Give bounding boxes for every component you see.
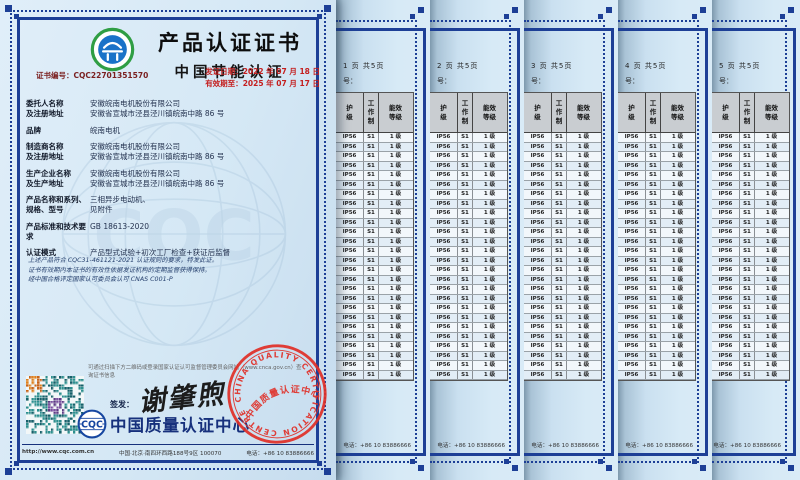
page-border <box>430 461 511 463</box>
table-row: IP56S11 级 <box>618 371 695 381</box>
table-cell: 1 级 <box>661 238 694 247</box>
table-cell: S1 <box>740 257 755 266</box>
table-cell: S1 <box>552 361 567 370</box>
table-row: IP56S11 级 <box>712 228 789 238</box>
table-row: IP56S11 级 <box>618 143 695 153</box>
table-row: IP56S11 级 <box>336 200 413 210</box>
table-cell: IP56 <box>336 323 364 332</box>
table-cell: S1 <box>458 295 473 304</box>
table-cell: S1 <box>364 352 379 361</box>
table-cell: IP56 <box>524 171 552 180</box>
table-row: IP56S11 级 <box>430 285 507 295</box>
table-row: IP56S11 级 <box>430 323 507 333</box>
table-cell: 1 级 <box>473 200 506 209</box>
certificate-page: CQC 产品认证证书 中国节能认证 证书编号：CQ <box>0 0 336 480</box>
table-header-cell: 护级 <box>336 93 364 132</box>
table-cell: IP56 <box>430 323 458 332</box>
table-cell: S1 <box>646 143 661 152</box>
field-label: 生产企业名称及生产地址 <box>26 169 90 189</box>
table-cell: S1 <box>458 143 473 152</box>
table-cell: IP56 <box>430 304 458 313</box>
table-cell: S1 <box>740 323 755 332</box>
table-row: IP56S11 级 <box>430 276 507 286</box>
table-cell: 1 级 <box>379 228 412 237</box>
table-row: IP56S11 级 <box>712 371 789 381</box>
table-cell: IP56 <box>712 361 740 370</box>
page-number-label: 2 页 共5页 <box>437 61 478 71</box>
table-cell: IP56 <box>712 219 740 228</box>
table-cell: S1 <box>646 304 661 313</box>
table-cell: IP56 <box>618 361 646 370</box>
table-cell: 1 级 <box>473 314 506 323</box>
table-cell: S1 <box>740 295 755 304</box>
table-cell: 1 级 <box>567 276 600 285</box>
table-cell: IP56 <box>430 181 458 190</box>
table-cell: S1 <box>552 247 567 256</box>
table-cell: IP56 <box>618 152 646 161</box>
table-cell: S1 <box>552 304 567 313</box>
table-cell: S1 <box>458 200 473 209</box>
footer-url: http://www.cqc.com.cn <box>22 449 94 457</box>
table-cell: 1 级 <box>379 295 412 304</box>
table-cell: S1 <box>364 361 379 370</box>
certificate-title: 产品认证证书 <box>140 27 320 57</box>
table-cell: S1 <box>552 171 567 180</box>
table-cell: IP56 <box>618 162 646 171</box>
table-cell: 1 级 <box>473 323 506 332</box>
table-row: IP56S11 级 <box>712 143 789 153</box>
table-cell: 1 级 <box>661 314 694 323</box>
energy-efficiency-table: 护级工作制能效等级IP56S11 级IP56S11 级IP56S11 级IP56… <box>430 92 508 381</box>
table-row: IP56S11 级 <box>430 181 507 191</box>
corner-square <box>606 465 612 471</box>
table-cell: 1 级 <box>755 371 788 380</box>
table-cell: S1 <box>740 266 755 275</box>
table-cell: S1 <box>552 162 567 171</box>
table-cell: S1 <box>740 304 755 313</box>
table-cell: S1 <box>552 295 567 304</box>
table-cell: IP56 <box>618 314 646 323</box>
certificate-field: 产品名称和系列、规格、型号三相异步电动机、见附件 <box>26 195 320 215</box>
table-cell: S1 <box>552 333 567 342</box>
table-cell: S1 <box>458 285 473 294</box>
page-border <box>618 453 708 456</box>
table-cell: S1 <box>646 247 661 256</box>
table-header-cell: 能效等级 <box>567 93 600 132</box>
table-cell: 1 级 <box>661 257 694 266</box>
table-cell: 1 级 <box>755 162 788 171</box>
table-cell: IP56 <box>336 295 364 304</box>
table-cell: IP56 <box>336 266 364 275</box>
table-cell: IP56 <box>524 143 552 152</box>
table-row: IP56S11 级 <box>524 304 601 314</box>
table-cell: 1 级 <box>567 219 600 228</box>
table-cell: IP56 <box>430 219 458 228</box>
table-cell: S1 <box>740 200 755 209</box>
table-cell: S1 <box>646 323 661 332</box>
table-cell: 1 级 <box>379 361 412 370</box>
energy-efficiency-table: 护级工作制能效等级IP56S11 级IP56S11 级IP56S11 级IP56… <box>524 92 602 381</box>
table-cell: IP56 <box>524 323 552 332</box>
table-cell: 1 级 <box>755 257 788 266</box>
table-row: IP56S11 级 <box>618 247 695 257</box>
table-cell: 1 级 <box>379 342 412 351</box>
table-cell: S1 <box>646 361 661 370</box>
table-cell: IP56 <box>618 352 646 361</box>
table-cell: IP56 <box>712 342 740 351</box>
table-cell: IP56 <box>524 238 552 247</box>
table-cell: 1 级 <box>567 143 600 152</box>
table-cell: S1 <box>740 371 755 380</box>
table-cell: 1 级 <box>755 314 788 323</box>
footer-phone: 电话：+86 10 83886666 <box>437 441 505 449</box>
table-cell: IP56 <box>618 333 646 342</box>
table-cell: 1 级 <box>755 200 788 209</box>
table-cell: 1 级 <box>473 209 506 218</box>
table-cell: 1 级 <box>567 133 600 142</box>
table-row: IP56S11 级 <box>618 285 695 295</box>
table-cell: IP56 <box>336 228 364 237</box>
table-cell: IP56 <box>712 228 740 237</box>
table-row: IP56S11 级 <box>336 323 413 333</box>
table-cell: 1 级 <box>755 209 788 218</box>
table-cell: 1 级 <box>567 333 600 342</box>
table-cell: IP56 <box>712 285 740 294</box>
table-row: IP56S11 级 <box>336 133 413 143</box>
table-header-cell: 能效等级 <box>661 93 694 132</box>
table-cell: 1 级 <box>755 152 788 161</box>
corner-square <box>512 7 518 13</box>
table-row: IP56S11 级 <box>618 209 695 219</box>
table-cell: S1 <box>740 143 755 152</box>
table-cell: 1 级 <box>661 285 694 294</box>
table-cell: 1 级 <box>567 162 600 171</box>
table-row: IP56S11 级 <box>430 143 507 153</box>
table-row: IP56S11 级 <box>524 342 601 352</box>
table-cell: IP56 <box>712 133 740 142</box>
table-cell: S1 <box>552 371 567 380</box>
table-row: IP56S11 级 <box>430 162 507 172</box>
table-cell: IP56 <box>524 314 552 323</box>
page-border <box>697 20 699 463</box>
table-cell: S1 <box>646 190 661 199</box>
table-cell: IP56 <box>712 276 740 285</box>
table-header-cell: 护级 <box>524 93 552 132</box>
table-row: IP56S11 级 <box>712 257 789 267</box>
table-cell: S1 <box>364 314 379 323</box>
attachment-page: 1 页 共5页号：护级工作制能效等级IP56S11 级IP56S11 级IP56… <box>336 0 430 480</box>
table-row: IP56S11 级 <box>336 285 413 295</box>
table-row: IP56S11 级 <box>618 133 695 143</box>
table-cell: IP56 <box>712 200 740 209</box>
table-cell: 1 级 <box>755 143 788 152</box>
table-cell: S1 <box>458 219 473 228</box>
table-cell: IP56 <box>618 209 646 218</box>
table-cell: IP56 <box>618 276 646 285</box>
table-cell: 1 级 <box>473 171 506 180</box>
table-row: IP56S11 级 <box>712 171 789 181</box>
table-row: IP56S11 级 <box>336 181 413 191</box>
table-cell: S1 <box>364 162 379 171</box>
table-cell: S1 <box>552 190 567 199</box>
table-row: IP56S11 级 <box>430 247 507 257</box>
table-row: IP56S11 级 <box>524 209 601 219</box>
table-cell: IP56 <box>524 361 552 370</box>
page-border <box>712 28 796 31</box>
table-cell: S1 <box>364 342 379 351</box>
table-row: IP56S11 级 <box>430 314 507 324</box>
table-header-cell: 护级 <box>618 93 646 132</box>
table-row: IP56S11 级 <box>712 190 789 200</box>
field-label: 产品名称和系列、规格、型号 <box>26 195 90 215</box>
table-cell: 1 级 <box>661 162 694 171</box>
table-row: IP56S11 级 <box>618 333 695 343</box>
table-row: IP56S11 级 <box>430 295 507 305</box>
table-cell: 1 级 <box>661 371 694 380</box>
table-cell: S1 <box>364 285 379 294</box>
table-row: IP56S11 级 <box>712 276 789 286</box>
corner-square <box>512 465 518 471</box>
table-cell: S1 <box>740 333 755 342</box>
table-cell: IP56 <box>430 342 458 351</box>
table-row: IP56S11 级 <box>524 133 601 143</box>
table-row: IP56S11 级 <box>336 295 413 305</box>
table-cell: IP56 <box>618 238 646 247</box>
corner-square <box>692 459 697 464</box>
table-cell: S1 <box>740 219 755 228</box>
certification-statement: 上述产品符合 CQC31-461121-2021 认证规则的要求，特发此证。证书… <box>28 256 328 285</box>
table-cell: S1 <box>646 295 661 304</box>
table-row: IP56S11 级 <box>430 342 507 352</box>
table-header-cell: 能效等级 <box>379 93 412 132</box>
table-cell: IP56 <box>712 247 740 256</box>
table-row: IP56S11 级 <box>524 276 601 286</box>
table-cell: IP56 <box>336 361 364 370</box>
table-cell: 1 级 <box>379 352 412 361</box>
table-cell: IP56 <box>712 143 740 152</box>
table-cell: S1 <box>552 200 567 209</box>
table-cell: S1 <box>552 143 567 152</box>
table-header-cell: 工作制 <box>458 93 473 132</box>
table-cell: 1 级 <box>567 228 600 237</box>
table-cell: 1 级 <box>379 276 412 285</box>
table-cell: 1 级 <box>755 219 788 228</box>
footer-address: 中国·北京·南四环西路188号9区 100070 <box>119 449 221 457</box>
table-cell: S1 <box>740 228 755 237</box>
table-row: IP56S11 级 <box>430 228 507 238</box>
table-cell: S1 <box>364 371 379 380</box>
valid-until-value: 2025 年 07 月 17 日 <box>243 79 320 88</box>
table-row: IP56S11 级 <box>524 285 601 295</box>
table-cell: IP56 <box>430 200 458 209</box>
table-cell: IP56 <box>336 238 364 247</box>
table-cell: 1 级 <box>473 285 506 294</box>
table-cell: IP56 <box>712 323 740 332</box>
table-cell: IP56 <box>430 314 458 323</box>
table-cell: 1 级 <box>473 190 506 199</box>
table-cell: S1 <box>552 209 567 218</box>
energy-efficiency-table: 护级工作制能效等级IP56S11 级IP56S11 级IP56S11 级IP56… <box>336 92 414 381</box>
energy-efficiency-table: 护级工作制能效等级IP56S11 级IP56S11 级IP56S11 级IP56… <box>712 92 790 381</box>
attachment-page: 4 页 共5页号：护级工作制能效等级IP56S11 级IP56S11 级IP56… <box>618 0 712 480</box>
table-cell: 1 级 <box>661 190 694 199</box>
table-cell: S1 <box>458 133 473 142</box>
table-cell: S1 <box>364 228 379 237</box>
table-cell: IP56 <box>430 238 458 247</box>
table-cell: IP56 <box>524 333 552 342</box>
table-cell: S1 <box>364 266 379 275</box>
table-cell: IP56 <box>430 276 458 285</box>
page-border <box>712 461 787 463</box>
page-border <box>793 28 796 456</box>
table-cell: IP56 <box>336 314 364 323</box>
table-cell: IP56 <box>618 181 646 190</box>
table-cell: S1 <box>646 238 661 247</box>
page-border <box>603 20 605 463</box>
qr-code <box>26 376 84 434</box>
corner-square <box>5 5 12 12</box>
table-cell: IP56 <box>430 266 458 275</box>
corner-square <box>5 468 12 475</box>
table-cell: S1 <box>458 152 473 161</box>
footer-phone: 电话：+86 10 83886666 <box>625 441 693 449</box>
table-cell: 1 级 <box>379 247 412 256</box>
table-cell: S1 <box>740 352 755 361</box>
table-cell: S1 <box>740 247 755 256</box>
table-cell: 1 级 <box>379 371 412 380</box>
field-label: 委托人名称及注册地址 <box>26 99 90 119</box>
table-cell: 1 级 <box>661 276 694 285</box>
table-cell: IP56 <box>430 171 458 180</box>
table-cell: IP56 <box>336 152 364 161</box>
table-cell: IP56 <box>712 266 740 275</box>
table-cell: S1 <box>646 371 661 380</box>
table-cell: 1 级 <box>567 266 600 275</box>
statement-line: 证书有效期内本证书的有效性依据发证机构的定期监督获得保持。 <box>28 266 328 276</box>
page-border <box>712 20 787 22</box>
table-cell: IP56 <box>712 238 740 247</box>
page-number-label: 1 页 共5页 <box>343 61 384 71</box>
table-cell: S1 <box>552 276 567 285</box>
table-cell: IP56 <box>618 257 646 266</box>
table-cell: S1 <box>646 352 661 361</box>
table-row: IP56S11 级 <box>712 352 789 362</box>
table-cell: 1 级 <box>755 333 788 342</box>
table-cell: IP56 <box>524 295 552 304</box>
table-cell: IP56 <box>524 181 552 190</box>
table-cell: IP56 <box>430 190 458 199</box>
table-cell: S1 <box>364 333 379 342</box>
table-cell: IP56 <box>430 371 458 380</box>
table-cell: IP56 <box>524 285 552 294</box>
corner-square <box>418 7 424 13</box>
table-cell: IP56 <box>712 352 740 361</box>
table-cell: 1 级 <box>661 304 694 313</box>
table-row: IP56S11 级 <box>430 152 507 162</box>
table-header: 护级工作制能效等级 <box>430 93 507 133</box>
table-cell: 1 级 <box>473 219 506 228</box>
table-cell: 1 级 <box>379 181 412 190</box>
corner-square <box>317 461 322 466</box>
table-cell: S1 <box>552 228 567 237</box>
corner-square <box>788 465 794 471</box>
table-cell: IP56 <box>618 266 646 275</box>
table-cell: S1 <box>458 371 473 380</box>
table-row: IP56S11 级 <box>712 209 789 219</box>
corner-square <box>410 459 415 464</box>
certificate-no-label: 号： <box>343 76 357 86</box>
table-row: IP56S11 级 <box>524 361 601 371</box>
table-cell: S1 <box>646 171 661 180</box>
table-cell: S1 <box>552 238 567 247</box>
table-row: IP56S11 级 <box>430 209 507 219</box>
table-cell: 1 级 <box>379 266 412 275</box>
table-cell: IP56 <box>430 209 458 218</box>
table-cell: IP56 <box>618 200 646 209</box>
table-row: IP56S11 级 <box>430 304 507 314</box>
table-cell: 1 级 <box>379 219 412 228</box>
table-cell: 1 级 <box>661 152 694 161</box>
table-cell: 1 级 <box>567 285 600 294</box>
table-cell: 1 级 <box>473 238 506 247</box>
table-cell: S1 <box>646 228 661 237</box>
table-row: IP56S11 级 <box>618 361 695 371</box>
page-border <box>705 28 708 456</box>
page-border <box>336 453 426 456</box>
table-cell: S1 <box>740 361 755 370</box>
table-cell: S1 <box>364 209 379 218</box>
page-border <box>336 20 417 22</box>
table-row: IP56S11 级 <box>618 304 695 314</box>
page-border <box>430 20 511 22</box>
page-border <box>712 453 796 456</box>
table-row: IP56S11 级 <box>618 257 695 267</box>
statement-line: 上述产品符合 CQC31-461121-2021 认证规则的要求，特发此证。 <box>28 256 328 266</box>
table-header-cell: 工作制 <box>364 93 379 132</box>
table-cell: IP56 <box>712 304 740 313</box>
page-border <box>524 453 614 456</box>
table-row: IP56S11 级 <box>524 247 601 257</box>
table-cell: 1 级 <box>473 295 506 304</box>
table-row: IP56S11 级 <box>524 152 601 162</box>
footer-phone: 电话：+86 10 83886666 <box>246 449 314 457</box>
field-value: 安徽皖南电机股份有限公司安徽省宣城市泾县泾川镇皖南中路 86 号 <box>90 142 320 162</box>
certificate-number-value: CQC22701351570 <box>74 71 149 80</box>
table-cell: S1 <box>364 171 379 180</box>
corner-square <box>606 7 612 13</box>
table-cell: 1 级 <box>567 314 600 323</box>
table-cell: 1 级 <box>379 257 412 266</box>
corner-square <box>692 14 697 19</box>
table-cell: S1 <box>458 247 473 256</box>
table-row: IP56S11 级 <box>524 219 601 229</box>
table-cell: 1 级 <box>661 352 694 361</box>
table-cell: IP56 <box>524 371 552 380</box>
table-cell: 1 级 <box>661 228 694 237</box>
page-border <box>517 28 520 456</box>
table-cell: S1 <box>740 238 755 247</box>
table-cell: S1 <box>552 352 567 361</box>
table-cell: 1 级 <box>567 171 600 180</box>
table-row: IP56S11 级 <box>524 238 601 248</box>
corner-square <box>598 14 603 19</box>
table-cell: IP56 <box>430 133 458 142</box>
table-cell: IP56 <box>336 342 364 351</box>
table-cell: IP56 <box>618 133 646 142</box>
field-value: 安徽皖南电机股份有限公司安徽省宣城市泾县泾川镇皖南中路 86 号 <box>90 169 320 189</box>
page-border <box>524 20 605 22</box>
table-cell: IP56 <box>524 219 552 228</box>
